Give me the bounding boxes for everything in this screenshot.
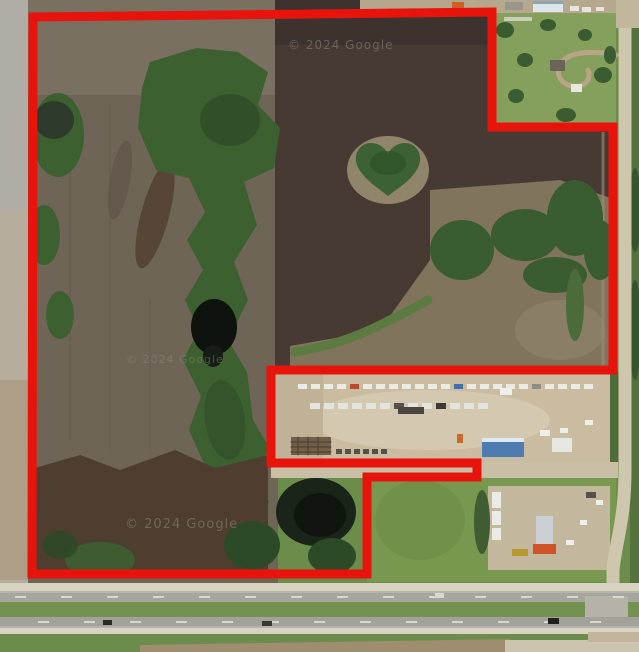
highway-dashes-south (38, 621, 49, 623)
yard-trailer-row-1 (415, 384, 424, 389)
farmstead-tree-5 (594, 67, 612, 83)
yard-trailer-row-2 (324, 403, 334, 409)
yard-trailer-row-1 (428, 384, 437, 389)
yard-container-dark (398, 407, 424, 414)
farmstead-tree-6 (508, 89, 524, 103)
business-trailer-1 (492, 492, 501, 508)
yard-trailer-row-2 (338, 403, 348, 409)
yard-blue-building-ridge (482, 438, 524, 442)
heart-trees-core (370, 151, 406, 175)
yard-trailer-row-1 (584, 384, 593, 389)
business-truck-dark (586, 492, 596, 498)
farmstead-shed (550, 60, 565, 71)
highway-dashes-south (176, 621, 187, 623)
highway-dashes-north (245, 596, 256, 598)
yard-trailer-row-1 (558, 384, 567, 389)
highway-dashes-north (291, 596, 302, 598)
highway-roadway-north (0, 591, 639, 602)
farmstead-tree-7 (556, 108, 576, 122)
business-truck-2 (580, 520, 587, 525)
highway-dashes-north (15, 596, 26, 598)
yard-trailer-row-2 (450, 403, 460, 409)
yard-trailer-row-2 (380, 403, 390, 409)
map-canvas: © 2024 Google© 2024 Google© 2024 Google (0, 0, 639, 652)
yard-stack-row (372, 449, 378, 454)
yard-trailer-row-1 (532, 384, 541, 389)
highway-dashes-south (498, 621, 509, 623)
farmstead-tree-3 (540, 19, 556, 31)
farmstead-shed-white (571, 84, 582, 92)
google-watermark: © 2024 Google (288, 38, 393, 52)
farmstead-tree-8 (604, 46, 616, 64)
yard-blue-building (482, 440, 524, 457)
yard-trailer-row-1 (454, 384, 463, 389)
highway-dashes-north (153, 596, 164, 598)
highway-dashes-north (61, 596, 72, 598)
yard-trailer-row-1 (545, 384, 554, 389)
highway-vehicle-2 (262, 621, 272, 626)
highway-dashes-south (222, 621, 233, 623)
highway-dashes-north (107, 596, 118, 598)
yard-trailer-row-1 (376, 384, 385, 389)
highway-dashes-south (360, 621, 371, 623)
highway-dashes-north (199, 596, 210, 598)
business-trailer-2 (492, 511, 501, 525)
highway-dashes-north (567, 596, 578, 598)
business-trailer-3 (492, 528, 501, 540)
farmstead-tree-4 (578, 29, 592, 41)
highway-dashes-north (475, 596, 486, 598)
yard-truck-right-1 (540, 430, 550, 436)
south-gravel-corner (588, 632, 639, 642)
field-se-tan-mottle (515, 300, 605, 360)
slough-tree-2 (308, 538, 356, 574)
google-watermark: © 2024 Google (125, 517, 238, 532)
yard-trailer-row-2 (366, 403, 376, 409)
yard-trailer-row-2 (478, 403, 488, 409)
business-truck-3 (596, 500, 603, 505)
yard-stack-row (345, 449, 351, 454)
highway-dashes-north (613, 596, 624, 598)
google-watermark: © 2024 Google (126, 353, 224, 366)
yard-truck-right-3 (585, 420, 593, 425)
yard-trailer-row-1 (467, 384, 476, 389)
highway-shoulder-top (0, 583, 639, 592)
yard-trailer-row-1 (311, 384, 320, 389)
highway-dashes-south (590, 621, 601, 623)
highway-dashes-south (452, 621, 463, 623)
business-building-red-roof (533, 544, 556, 554)
business-trees-west (474, 490, 490, 554)
tree-cluster-right-1 (430, 220, 494, 280)
top-truck-2 (582, 7, 591, 12)
slough-core (294, 493, 346, 537)
highway-dashes-south (406, 621, 417, 623)
farmstead-fence-row (504, 17, 532, 21)
yard-trailer-row-1 (337, 384, 346, 389)
tree-clump-left-3 (46, 291, 74, 339)
forest-dark-spot-1 (200, 94, 260, 146)
tree-spike-right (566, 269, 584, 341)
yard-trailer-row-1 (519, 384, 528, 389)
highway-median-east (628, 602, 639, 617)
yard-trailer-row-1 (350, 384, 359, 389)
highway-shoulder-bottom (0, 628, 639, 634)
yard-trailer-row-1 (389, 384, 398, 389)
highway-dashes-south (314, 621, 325, 623)
highway-vehicle-3 (548, 618, 559, 624)
yard-truck-right-2 (560, 428, 568, 433)
yard-trailer-row-1 (324, 384, 333, 389)
highway-dashes-north (337, 596, 348, 598)
left-strip-gray-top (0, 0, 30, 210)
top-truck-1 (570, 6, 579, 11)
highway-vehicle-4 (435, 593, 444, 598)
highway-dashes-south (84, 621, 95, 623)
yard-trailer-row-1 (441, 384, 450, 389)
yard-trailer-row-1 (363, 384, 372, 389)
left-strip-tan (0, 380, 28, 580)
yard-stack-row (381, 449, 387, 454)
yard-trailer-row-2 (464, 403, 474, 409)
lower-tree-2 (42, 531, 78, 559)
yard-stack-row (336, 449, 342, 454)
satellite-map: © 2024 Google© 2024 Google© 2024 Google (0, 0, 639, 652)
top-building-blue-roofline (533, 1, 563, 4)
highway-vehicle-1 (103, 620, 112, 625)
yard-trailer-row-1 (571, 384, 580, 389)
yard-white-building (552, 438, 572, 452)
yard-stack-row (354, 449, 360, 454)
highway-dashes-south (130, 621, 141, 623)
east-road-top-flare (616, 0, 639, 28)
yard-orange-unit (457, 434, 463, 443)
highway-dashes-north (383, 596, 394, 598)
yard-stack-row (363, 449, 369, 454)
highway-median (0, 602, 585, 617)
yard-trailer-row-2 (352, 403, 362, 409)
yard-trailer-row-1 (480, 384, 489, 389)
highway-dashes-north (521, 596, 532, 598)
yard-trailer-row-1 (402, 384, 411, 389)
yard-truck-right-4 (500, 388, 512, 395)
yard-trailer-row-2 (310, 403, 320, 409)
farmstead-tree-1 (496, 22, 514, 38)
business-building (536, 516, 553, 546)
dark-slough-top-left (34, 101, 74, 139)
yard-trailer-row-2 (436, 403, 446, 409)
top-truck-4 (505, 2, 523, 10)
lawn-shade (375, 480, 465, 560)
business-truck-yellow (512, 549, 528, 556)
farmstead-tree-2 (517, 53, 533, 67)
top-truck-3 (596, 7, 604, 11)
yard-trailer-row-1 (298, 384, 307, 389)
business-truck-1 (566, 540, 574, 545)
